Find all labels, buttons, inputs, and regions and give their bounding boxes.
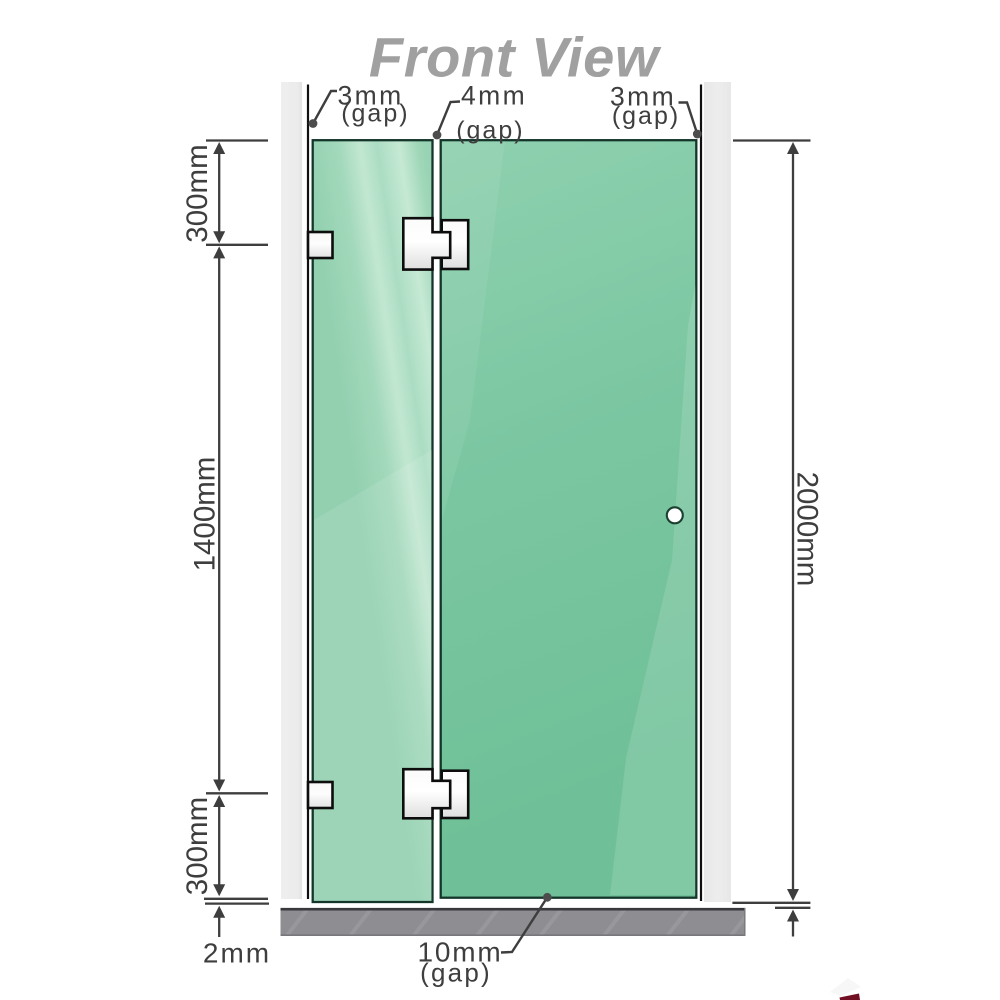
svg-text:300mm: 300mm [181,144,214,242]
svg-text:1400mm: 1400mm [189,457,222,572]
svg-text:4mm: 4mm [461,81,527,111]
svg-text:(gap): (gap) [420,958,492,988]
svg-text:(gap): (gap) [341,100,409,128]
svg-text:Front View: Front View [369,26,662,89]
svg-text:(gap): (gap) [612,102,680,130]
svg-text:2mm: 2mm [203,938,271,969]
svg-text:300mm: 300mm [181,797,214,895]
svg-text:(gap): (gap) [456,117,524,145]
svg-text:2000mm: 2000mm [790,472,823,587]
